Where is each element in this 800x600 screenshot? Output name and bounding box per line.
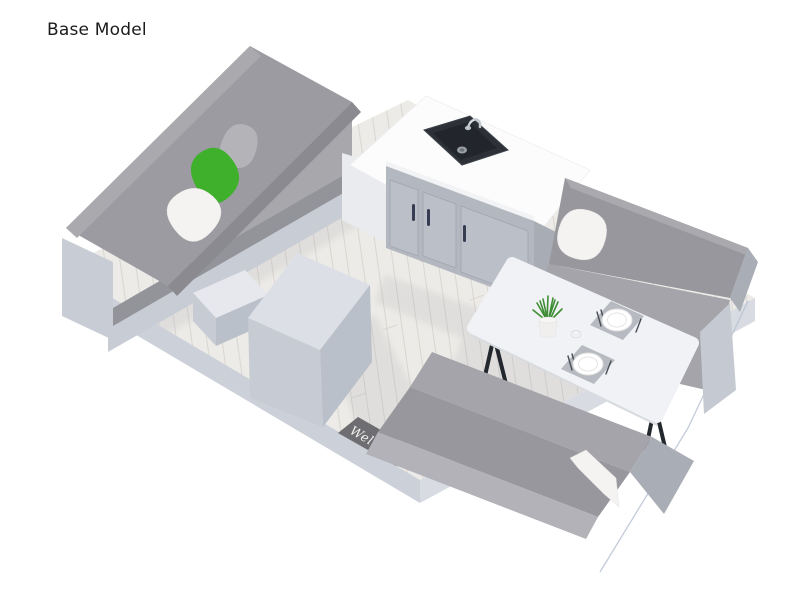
door-handle-3 [463,225,466,242]
door-handle-1 [412,204,415,221]
glass-cup [571,330,581,338]
floor-plan-render: Base Model [0,0,800,600]
plate-2 [573,353,603,375]
plant-pot-rim [539,317,557,323]
cabinet-door-2 [423,192,456,268]
door-handle-2 [427,209,430,226]
sink-drain-center [460,148,465,151]
plate-1 [602,309,632,331]
render-canvas: Welcome [0,0,800,600]
bench-white-pillow [557,209,606,260]
